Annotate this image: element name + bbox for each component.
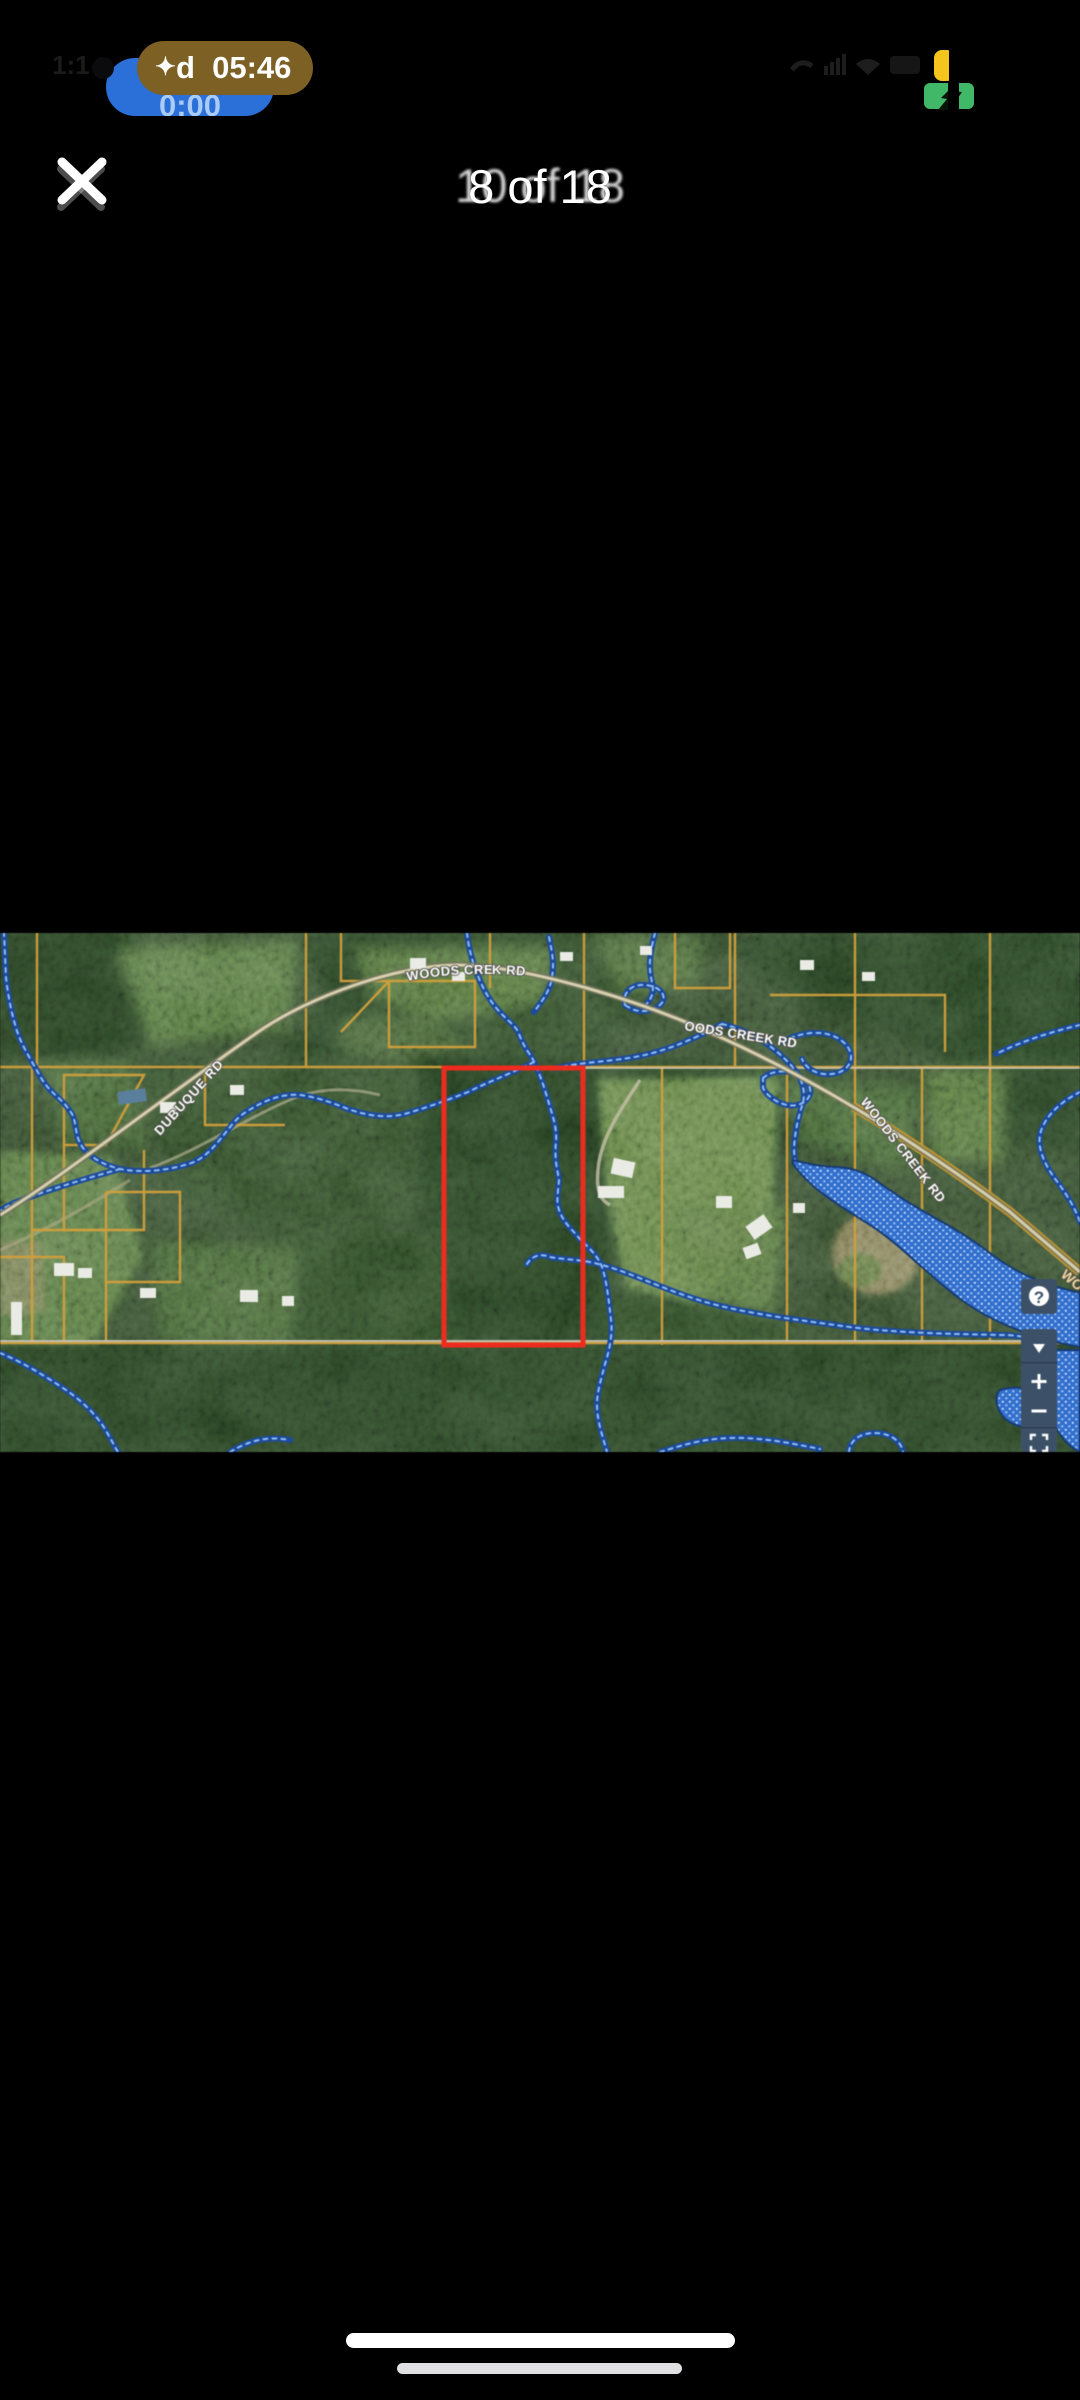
svg-text:K RD: K RD (492, 962, 527, 979)
svg-text:?: ? (1034, 1288, 1044, 1307)
